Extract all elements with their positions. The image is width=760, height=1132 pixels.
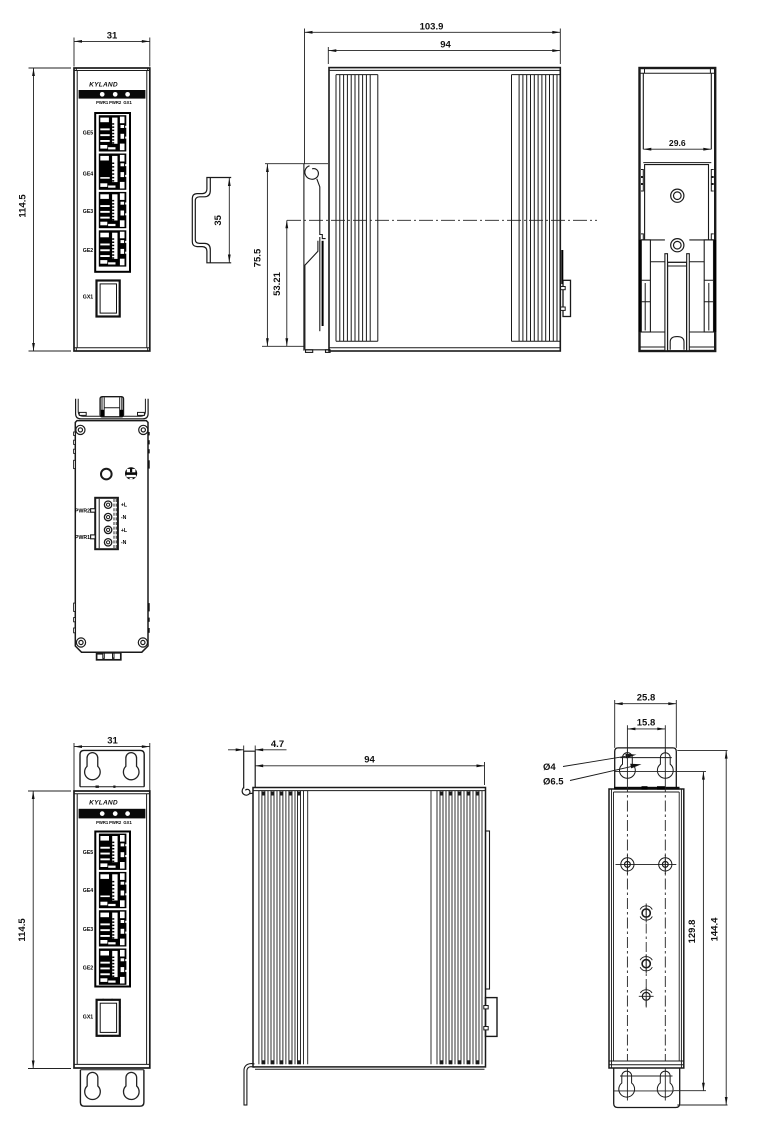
svg-text:144.4: 144.4: [710, 917, 721, 941]
svg-text:GE5: GE5: [83, 131, 93, 137]
svg-text:GX1: GX1: [83, 1015, 93, 1021]
svg-text:PWR1: PWR1: [96, 100, 109, 105]
svg-text:GX1: GX1: [83, 295, 93, 301]
svg-text:35: 35: [213, 214, 224, 225]
svg-text:GX1: GX1: [123, 820, 132, 825]
svg-text:PWR2: PWR2: [75, 508, 90, 514]
svg-text:Ø4: Ø4: [543, 762, 556, 773]
svg-text:Ø6.5: Ø6.5: [543, 777, 564, 788]
svg-text:GE3: GE3: [83, 209, 93, 215]
svg-text:GE3: GE3: [83, 927, 93, 933]
svg-text:KYLAND: KYLAND: [89, 799, 118, 806]
svg-text:75.5: 75.5: [253, 248, 264, 267]
svg-text:GE4: GE4: [83, 172, 93, 178]
svg-text:PWR1: PWR1: [96, 820, 109, 825]
svg-text:31: 31: [107, 735, 118, 746]
svg-text:GE2: GE2: [83, 248, 93, 254]
svg-text:29.6: 29.6: [669, 138, 686, 148]
svg-text:PWR2: PWR2: [109, 100, 122, 105]
svg-text:-N: -N: [121, 540, 127, 546]
svg-text:-N: -N: [121, 515, 127, 521]
svg-text:129.8: 129.8: [687, 920, 698, 944]
svg-text:PWR1: PWR1: [75, 535, 90, 541]
svg-text:PWR2: PWR2: [109, 820, 122, 825]
svg-text:15.8: 15.8: [637, 718, 656, 729]
svg-text:25.8: 25.8: [637, 693, 656, 704]
svg-text:4.7: 4.7: [271, 739, 284, 750]
svg-text:53.21: 53.21: [272, 271, 283, 295]
svg-text:114.5: 114.5: [17, 918, 28, 942]
svg-text:GE5: GE5: [83, 850, 93, 856]
svg-text:+L: +L: [121, 528, 128, 534]
svg-text:GX1: GX1: [123, 100, 132, 105]
svg-text:114.5: 114.5: [18, 194, 29, 218]
svg-text:GE4: GE4: [83, 888, 93, 894]
svg-text:94: 94: [440, 40, 451, 51]
svg-text:+L: +L: [121, 503, 128, 509]
svg-text:103.9: 103.9: [420, 21, 444, 32]
svg-text:31: 31: [107, 31, 118, 42]
svg-text:KYLAND: KYLAND: [89, 82, 118, 89]
svg-text:94: 94: [364, 754, 375, 765]
svg-text:GE2: GE2: [83, 965, 93, 971]
